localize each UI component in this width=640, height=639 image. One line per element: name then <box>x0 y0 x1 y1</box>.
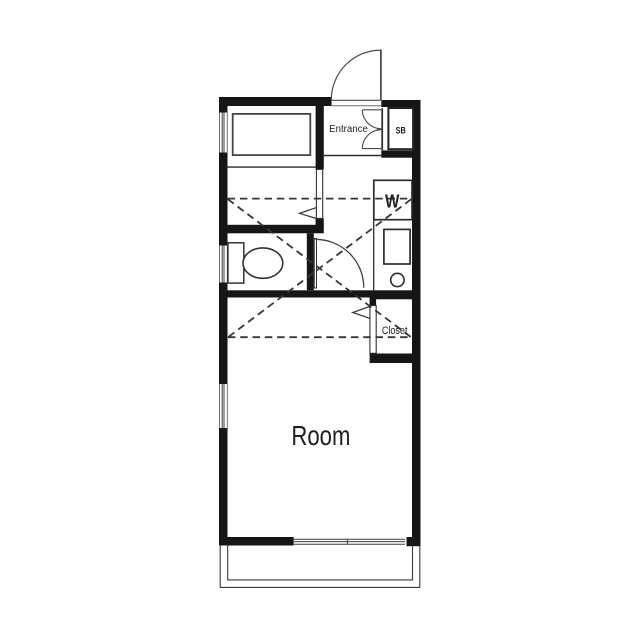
svg-text:Closet: Closet <box>382 325 408 337</box>
svg-text:W: W <box>385 191 399 212</box>
svg-text:Room: Room <box>291 421 350 452</box>
svg-text:SB: SB <box>396 125 406 136</box>
svg-text:Entrance: Entrance <box>329 124 368 135</box>
